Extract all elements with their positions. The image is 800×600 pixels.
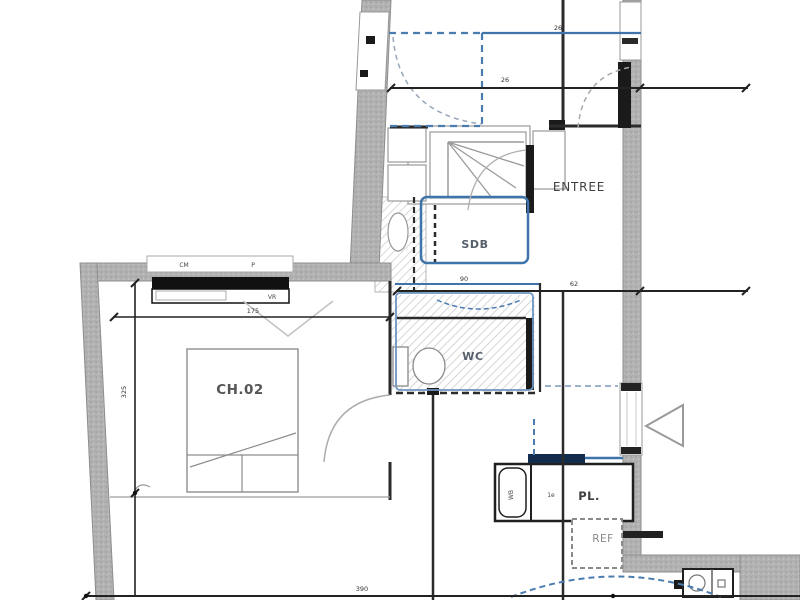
dim-sdb: 90 bbox=[460, 275, 468, 283]
dim-left-height: 325 bbox=[120, 386, 128, 398]
floor-plan: CM P VR bbox=[0, 0, 800, 600]
dim-bottom: 390 bbox=[356, 585, 368, 593]
window-direction-triangle bbox=[646, 405, 683, 446]
window-diagonal-wall bbox=[356, 12, 389, 90]
closet-header-bar bbox=[528, 454, 585, 463]
cabinet-top bbox=[388, 128, 426, 162]
entry-door-leaf bbox=[618, 62, 631, 128]
dim-window-width: 175 bbox=[247, 307, 259, 315]
bed bbox=[187, 349, 298, 492]
bedroom-door-arc bbox=[324, 395, 390, 462]
window-shutter-tag: VR bbox=[268, 294, 276, 301]
window-right-wall-top bbox=[620, 2, 641, 60]
window-tag-left: CM bbox=[179, 262, 188, 269]
toilet bbox=[393, 347, 445, 386]
dim-entry-blue: 26 bbox=[554, 24, 562, 32]
room-label-pl: PL. bbox=[578, 489, 600, 503]
wc-floor-hatch bbox=[392, 295, 535, 392]
room-label-wc: WC bbox=[462, 350, 483, 363]
wall-corner-block bbox=[740, 555, 800, 600]
window-tag-right: P bbox=[251, 262, 255, 269]
washbasin bbox=[388, 213, 408, 251]
cabinet-bottom bbox=[388, 165, 426, 201]
heater-tag: WB bbox=[508, 490, 515, 500]
floor-plan-canvas: CM P VR bbox=[0, 0, 800, 600]
kitchen-sink bbox=[674, 569, 733, 597]
room-label-ref: REF bbox=[592, 533, 613, 545]
sink-basin bbox=[689, 575, 705, 591]
dim-hall: 62 bbox=[570, 280, 578, 288]
dim-entry-black: 26 bbox=[501, 76, 509, 84]
wall-left-vertical bbox=[80, 263, 114, 600]
room-label-ch02: CH.02 bbox=[216, 382, 264, 398]
toilet-bowl bbox=[413, 348, 445, 384]
bedroom-window: CM P VR bbox=[147, 256, 293, 303]
room-label-entree: ENTREE bbox=[553, 180, 605, 194]
sdb-enclosure bbox=[421, 197, 528, 263]
entry-top-door-arc bbox=[393, 37, 482, 124]
wall-lintel-mark bbox=[623, 531, 663, 538]
pl-cell-tag: 1e bbox=[547, 492, 555, 499]
window-right-wall-lower bbox=[620, 383, 683, 455]
room-label-sdb: SDB bbox=[461, 238, 488, 251]
